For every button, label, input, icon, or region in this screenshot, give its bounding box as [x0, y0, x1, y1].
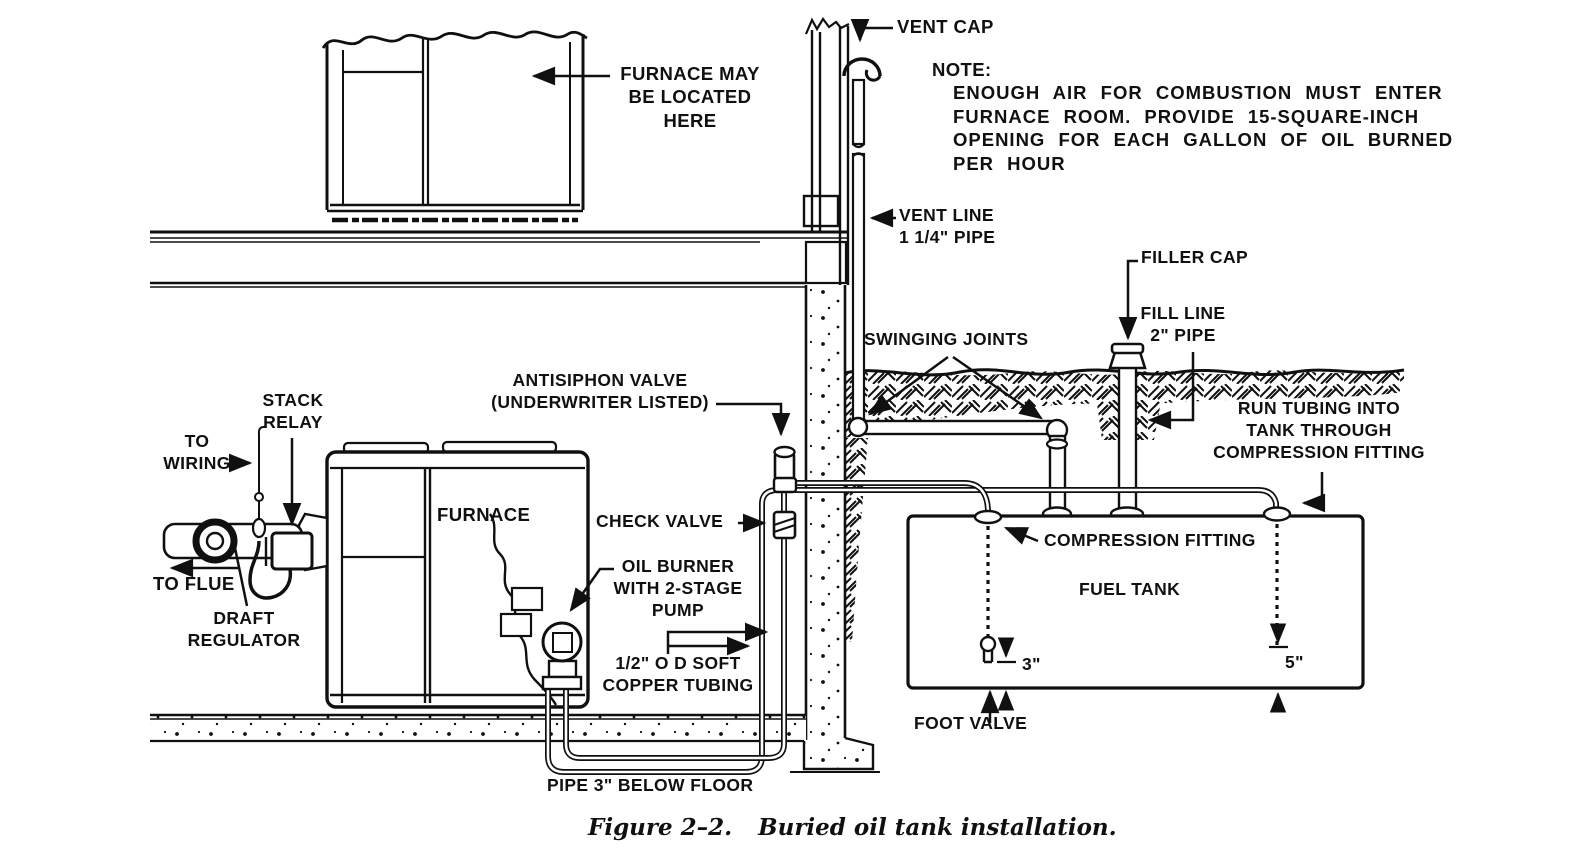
upper-furnace-space — [323, 32, 587, 220]
label-swinging-joints: SWINGING JOINTS — [864, 328, 1028, 350]
label-stack-relay: STACK RELAY — [263, 389, 324, 433]
label-line: 1/2" O D SOFT — [602, 652, 753, 674]
label-line: REGULATOR — [188, 629, 301, 651]
figure-caption: Figure 2–2.Buried oil tank installation. — [588, 814, 1117, 841]
label-line: (UNDERWRITER LISTED) — [491, 391, 709, 413]
label-line: TO — [163, 430, 231, 452]
diagram: FURNACE MAY BE LOCATED HERE VENT CAP NOT… — [0, 0, 1586, 868]
label-line: HERE — [620, 109, 759, 132]
label-filler-cap: FILLER CAP — [1141, 246, 1248, 268]
caption-figure-number: Figure 2–2. — [588, 814, 732, 841]
basement-furnace — [299, 442, 588, 707]
label-dim-5: 5" — [1285, 651, 1304, 673]
label-line: OIL BURNER — [614, 555, 743, 577]
label-run-tubing: RUN TUBING INTO TANK THROUGH COMPRESSION… — [1213, 397, 1425, 463]
label-check-valve: CHECK VALVE — [596, 510, 723, 532]
label-oil-burner: OIL BURNER WITH 2-STAGE PUMP — [614, 555, 743, 621]
label-line: COMPRESSION FITTING — [1213, 441, 1425, 463]
label-line: TANK THROUGH — [1213, 419, 1425, 441]
label-dim-3: 3" — [1022, 653, 1041, 675]
label-line: PUMP — [614, 599, 743, 621]
label-vent-cap: VENT CAP — [897, 15, 994, 38]
label-line: WITH 2-STAGE — [614, 577, 743, 599]
note-body: ENOUGH AIR FOR COMBUSTION MUST ENTER FUR… — [953, 81, 1453, 176]
label-draft-regulator: DRAFT REGULATOR — [188, 607, 301, 651]
label-foot-valve: FOOT VALVE — [914, 712, 1027, 734]
label-line: FURNACE MAY — [620, 62, 759, 85]
label-copper-tubing: 1/2" O D SOFT COPPER TUBING — [602, 652, 753, 696]
label-line: 2" PIPE — [1141, 324, 1226, 346]
label-to-wiring: TO WIRING — [163, 430, 231, 474]
vent-line-assembly — [844, 59, 880, 422]
label-compression-fitting: COMPRESSION FITTING — [1044, 529, 1256, 551]
note-line: ENOUGH AIR FOR COMBUSTION MUST ENTER — [953, 81, 1453, 105]
house-structure — [150, 19, 849, 287]
label-antisiphon-valve: ANTISIPHON VALVE (UNDERWRITER LISTED) — [491, 369, 709, 413]
label-line: VENT LINE — [899, 204, 995, 226]
note-line: FURNACE ROOM. PROVIDE 15-SQUARE-INCH — [953, 105, 1453, 129]
label-pipe-below-floor: PIPE 3" BELOW FLOOR — [547, 774, 753, 796]
label-furnace-location: FURNACE MAY BE LOCATED HERE — [620, 62, 759, 132]
label-line: ANTISIPHON VALVE — [491, 369, 709, 391]
label-line: BE LOCATED — [620, 85, 759, 108]
note-line: OPENING FOR EACH GALLON OF OIL BURNED — [953, 128, 1453, 152]
note-line: PER HOUR — [953, 152, 1453, 176]
label-line: 1 1/4" PIPE — [899, 226, 995, 248]
note-title: NOTE: — [932, 58, 992, 81]
caption-title: Buried oil tank installation. — [758, 814, 1117, 841]
label-line: FILL LINE — [1141, 302, 1226, 324]
label-line: COPPER TUBING — [602, 674, 753, 696]
label-fuel-tank: FUEL TANK — [1079, 578, 1180, 600]
label-vent-line: VENT LINE 1 1/4" PIPE — [899, 204, 995, 248]
valve-assembly — [774, 447, 796, 538]
label-furnace: FURNACE — [437, 503, 530, 526]
label-line: RUN TUBING INTO — [1213, 397, 1425, 419]
label-line: WIRING — [163, 452, 231, 474]
label-line: RELAY — [263, 411, 324, 433]
label-line: DRAFT — [188, 607, 301, 629]
label-to-flue: TO FLUE — [153, 572, 235, 595]
label-fill-line: FILL LINE 2" PIPE — [1141, 302, 1226, 346]
label-line: STACK — [263, 389, 324, 411]
